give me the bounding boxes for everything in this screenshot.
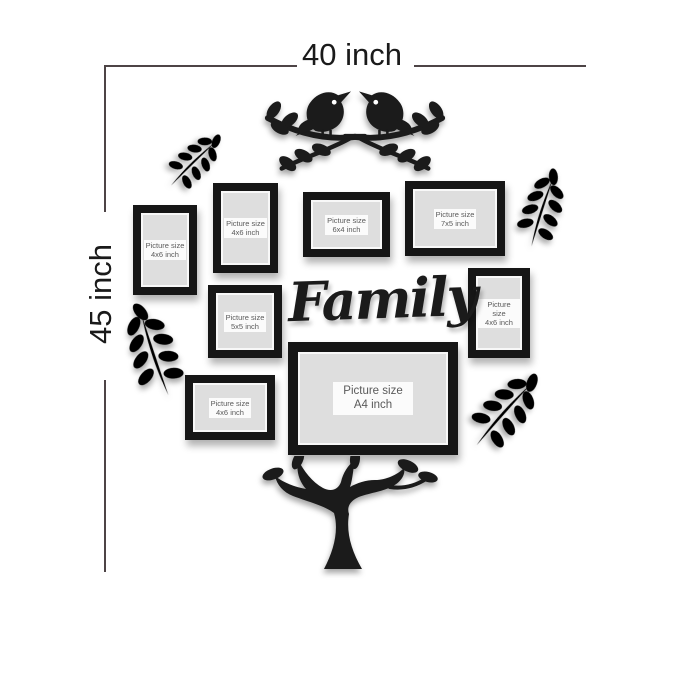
height-dimension-line-bottom bbox=[104, 380, 106, 572]
frame-a4: Picture sizeA4 inch bbox=[288, 342, 458, 455]
frame-6x4: Picture size6x4 inch bbox=[303, 192, 390, 257]
leaf-sprig-icon bbox=[500, 160, 582, 257]
picture-size-label: Picture size5x5 inch bbox=[224, 312, 267, 332]
frame-7x5: Picture size7x5 inch bbox=[405, 181, 505, 256]
width-dimension-line-right bbox=[414, 65, 586, 67]
height-dimension-line-top bbox=[104, 65, 106, 212]
frame-collage-diagram: 40 inch 45 inch bbox=[0, 0, 700, 700]
picture-size-label: Picture size4x6 inch bbox=[144, 240, 187, 260]
frame-5x5: Picture size5x5 inch bbox=[208, 285, 282, 358]
picture-size-label: Picture size7x5 inch bbox=[434, 209, 477, 229]
frame-mat: Picture sizeA4 inch bbox=[298, 352, 448, 445]
frame-mat: Picture size4x6 inch bbox=[193, 383, 267, 432]
frame-4x6-top-left: Picture size4x6 inch bbox=[133, 205, 197, 295]
picture-size-label: Picture sizeA4 inch bbox=[333, 382, 412, 416]
family-wordart: Family bbox=[287, 264, 477, 335]
leaf-sprig-icon bbox=[446, 350, 562, 470]
picture-size-label: Picture size4x6 inch bbox=[478, 299, 520, 328]
tree-trunk-icon bbox=[262, 456, 440, 569]
width-dimension-line-left bbox=[105, 65, 297, 67]
picture-size-label: Picture size6x4 inch bbox=[325, 215, 368, 235]
frame-mat: Picture size4x6 inch bbox=[476, 276, 522, 350]
frame-4x6-right: Picture size4x6 inch bbox=[468, 268, 530, 358]
picture-size-label: Picture size4x6 inch bbox=[224, 218, 267, 238]
frame-mat: Picture size4x6 inch bbox=[221, 191, 270, 265]
frame-mat: Picture size4x6 inch bbox=[141, 213, 189, 287]
frame-4x6-bottom-left: Picture size4x6 inch bbox=[185, 375, 275, 440]
width-dimension-label: 40 inch bbox=[302, 37, 402, 73]
picture-size-label: Picture size4x6 inch bbox=[209, 398, 252, 418]
love-birds-branch-icon bbox=[256, 76, 454, 172]
frame-mat: Picture size7x5 inch bbox=[413, 189, 497, 248]
frame-mat: Picture size6x4 inch bbox=[311, 200, 382, 249]
frame-4x6-upper-mid: Picture size4x6 inch bbox=[213, 183, 278, 273]
frame-mat: Picture size5x5 inch bbox=[216, 293, 274, 350]
